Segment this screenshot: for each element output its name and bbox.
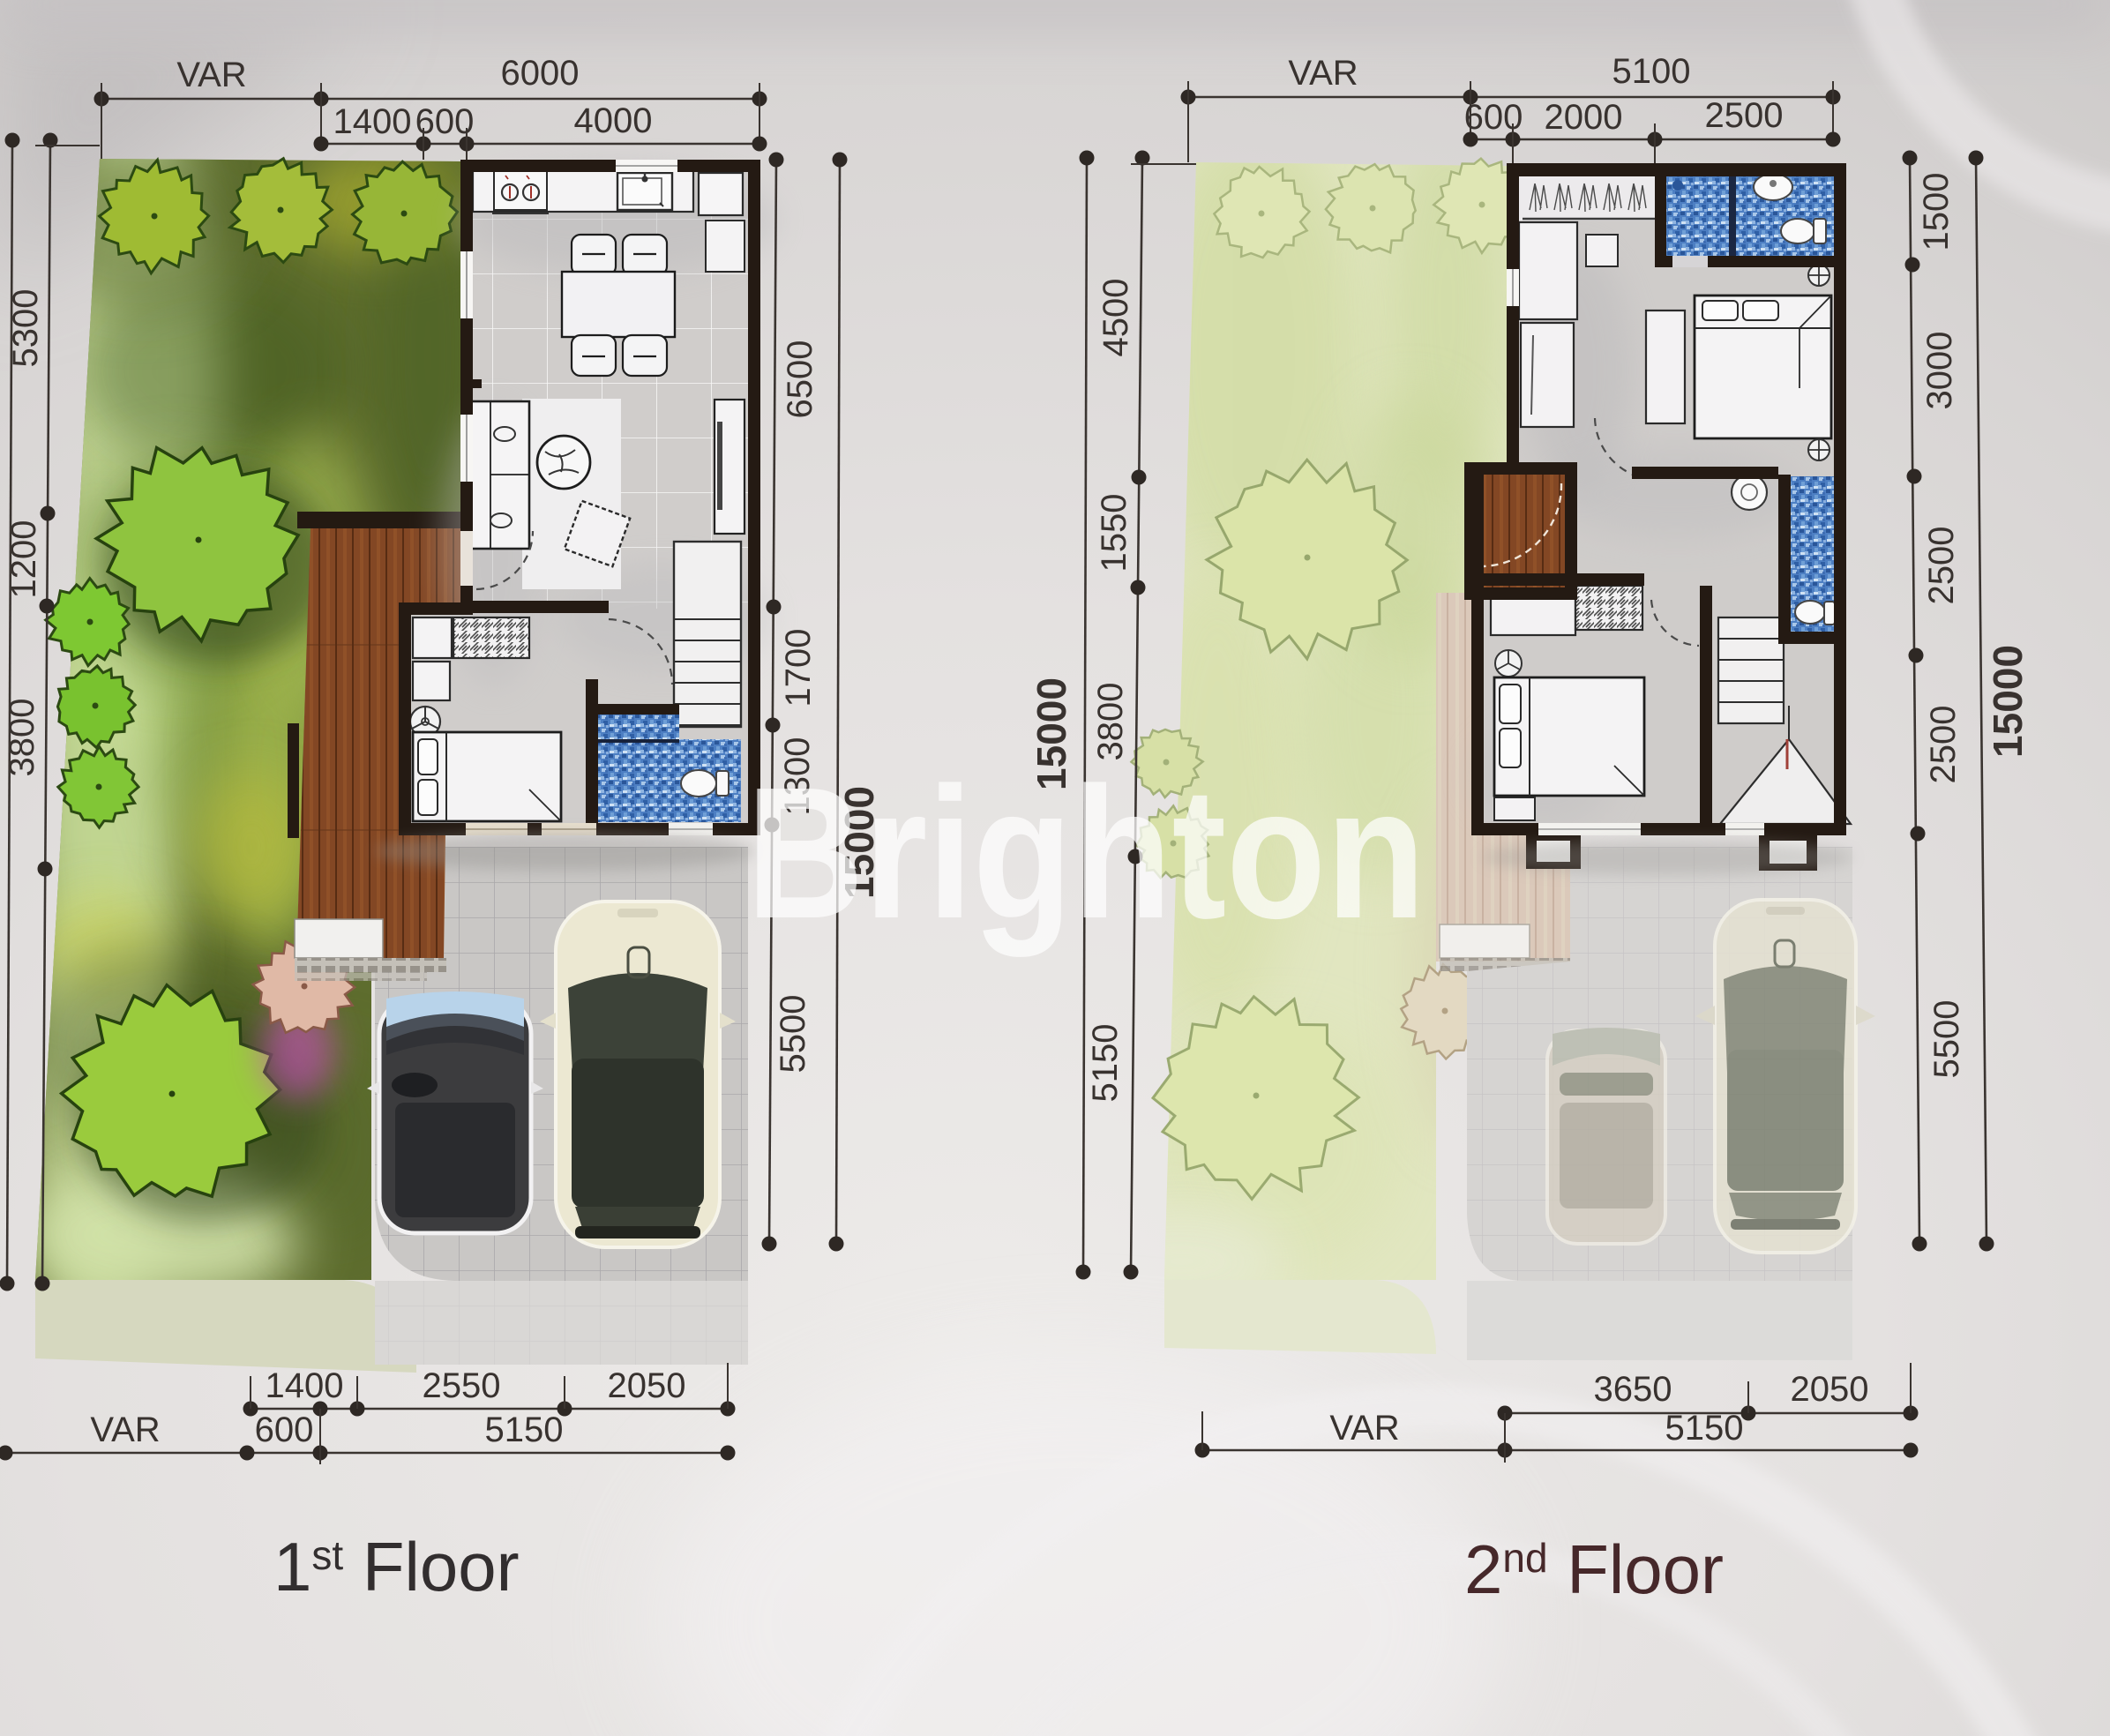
svg-text:5150: 5150 bbox=[1086, 1024, 1125, 1103]
svg-text:3650: 3650 bbox=[1594, 1370, 1672, 1409]
svg-text:5500: 5500 bbox=[774, 995, 812, 1074]
svg-text:6500: 6500 bbox=[781, 340, 819, 419]
svg-text:5500: 5500 bbox=[1927, 1000, 1966, 1079]
svg-text:VAR: VAR bbox=[90, 1410, 160, 1449]
svg-text:600: 600 bbox=[415, 102, 475, 141]
svg-text:1400: 1400 bbox=[333, 102, 412, 141]
svg-text:600: 600 bbox=[1464, 98, 1523, 137]
svg-text:2050: 2050 bbox=[1791, 1370, 1869, 1409]
svg-text:2050: 2050 bbox=[608, 1366, 686, 1405]
svg-text:1550: 1550 bbox=[1095, 494, 1134, 572]
svg-text:15000: 15000 bbox=[1985, 645, 2031, 758]
svg-text:2500: 2500 bbox=[1924, 706, 1963, 784]
svg-text:2500: 2500 bbox=[1922, 527, 1961, 605]
svg-text:5150: 5150 bbox=[485, 1410, 564, 1449]
svg-text:VAR: VAR bbox=[1288, 54, 1358, 93]
svg-text:4000: 4000 bbox=[574, 101, 653, 140]
svg-text:Brighton: Brighton bbox=[746, 748, 1425, 957]
svg-text:4500: 4500 bbox=[1096, 279, 1135, 357]
svg-text:1400: 1400 bbox=[266, 1366, 344, 1405]
svg-text:VAR: VAR bbox=[1329, 1409, 1399, 1448]
svg-text:1700: 1700 bbox=[779, 629, 818, 707]
svg-text:1500: 1500 bbox=[1917, 173, 1956, 251]
svg-text:6000: 6000 bbox=[501, 54, 580, 93]
svg-text:2000: 2000 bbox=[1545, 98, 1623, 137]
svg-text:5150: 5150 bbox=[1665, 1409, 1744, 1448]
svg-text:3000: 3000 bbox=[1920, 332, 1959, 410]
svg-text:VAR: VAR bbox=[176, 56, 246, 94]
svg-text:2550: 2550 bbox=[423, 1366, 501, 1405]
svg-text:600: 600 bbox=[255, 1410, 314, 1449]
svg-text:1st Floor: 1st Floor bbox=[273, 1528, 520, 1605]
svg-text:2500: 2500 bbox=[1705, 96, 1784, 135]
svg-text:5100: 5100 bbox=[1612, 52, 1691, 91]
